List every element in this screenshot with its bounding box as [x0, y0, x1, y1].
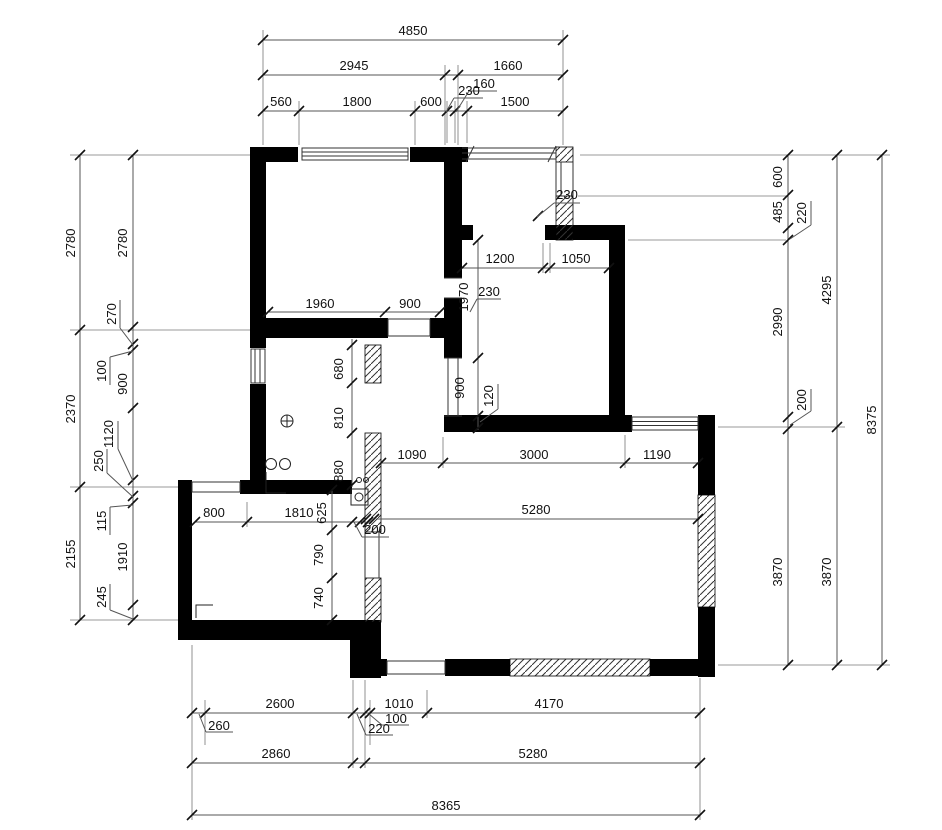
dim-label: 600 — [770, 166, 785, 188]
dim-label: 1120 — [101, 420, 116, 448]
dim-label: 740 — [311, 587, 326, 609]
dim-label: 1050 — [562, 251, 591, 266]
door-corner-mark — [196, 605, 213, 618]
small-fixture-icon — [357, 478, 362, 483]
dim-label: 900 — [115, 373, 130, 395]
dim-label: 2780 — [63, 229, 78, 258]
dim-label: 120 — [481, 385, 496, 407]
dim-label: 8375 — [864, 406, 879, 435]
window-bedroom1-top — [302, 148, 408, 160]
dim-label: 260 — [208, 718, 230, 733]
dim-label: 270 — [104, 303, 119, 325]
dim-label: 8365 — [432, 798, 461, 813]
dim-label: 5280 — [519, 746, 548, 761]
dim-label: 1660 — [494, 58, 523, 73]
dim-label: 2155 — [63, 540, 78, 569]
opening-living-bottom — [387, 661, 445, 674]
dim-label: 220 — [794, 202, 809, 224]
opening-bedroom1-bottom — [388, 319, 430, 336]
dim-label: 485 — [770, 201, 785, 223]
dim-label: 1500 — [501, 94, 530, 109]
window-living-top — [632, 417, 698, 430]
dim-label: 880 — [331, 460, 346, 482]
floor-plan-drawing: 4850 2945 1660 560 1800 600 1500 230 160… — [0, 0, 942, 830]
dim-label: 200 — [794, 389, 809, 411]
dim-label: 625 — [314, 502, 329, 524]
dim-label: 100 — [385, 711, 407, 726]
dim-label: 1200 — [486, 251, 515, 266]
dim-label: 900 — [399, 296, 421, 311]
dim-label: 2860 — [262, 746, 291, 761]
dim-label: 1960 — [306, 296, 335, 311]
dim-label: 3000 — [520, 447, 549, 462]
dim-label: 560 — [270, 94, 292, 109]
dim-label: 2990 — [770, 308, 785, 337]
dim-label: 1970 — [456, 283, 471, 312]
floor-plan-page: { "dims": { "top": {"d4850":"4850","d294… — [0, 0, 942, 830]
dim-label: 680 — [331, 358, 346, 380]
dim-label: 1090 — [398, 447, 427, 462]
wall-thin-segment — [365, 532, 379, 578]
dim-label: 100 — [94, 360, 109, 382]
dim-label: 230 — [556, 187, 578, 202]
dim-label: 1910 — [115, 543, 130, 572]
stove-burner-icon — [266, 459, 277, 470]
duct-circle-icon — [355, 493, 363, 501]
hatched-walls — [365, 147, 715, 676]
dim-label: 1800 — [343, 94, 372, 109]
dim-label: 1810 — [285, 505, 314, 520]
dim-label: 2780 — [115, 229, 130, 258]
dim-label: 245 — [94, 586, 109, 608]
dim-label: 800 — [203, 505, 225, 520]
door-opening-room3 — [192, 482, 240, 492]
dim-label: 2370 — [63, 395, 78, 424]
dim-label: 1190 — [643, 447, 671, 462]
dim-label: 2600 — [266, 696, 295, 711]
window-kitchen-left — [251, 349, 265, 383]
dim-label: 4850 — [399, 23, 428, 38]
dim-label: 2945 — [340, 58, 369, 73]
dim-label: 4295 — [819, 276, 834, 305]
stove-burner-icon — [280, 459, 291, 470]
dim-label: 160 — [473, 76, 495, 91]
dim-label: 3870 — [819, 558, 834, 587]
dim-label: 4170 — [535, 696, 564, 711]
dim-label: 900 — [452, 377, 467, 399]
dim-label: 790 — [311, 544, 326, 566]
dim-label: 5280 — [522, 502, 551, 517]
dim-label: 250 — [91, 450, 106, 472]
walls — [178, 147, 715, 678]
floor-plan-canvas: 4850 2945 1660 560 1800 600 1500 230 160… — [0, 0, 942, 830]
dim-label: 600 — [420, 94, 442, 109]
dim-label: 3870 — [770, 558, 785, 587]
dim-label: 230 — [478, 284, 500, 299]
dim-label: 1010 — [385, 696, 414, 711]
dim-label: 810 — [331, 407, 346, 429]
dim-label: 115 — [94, 511, 109, 532]
dim-label: 200 — [364, 522, 386, 537]
